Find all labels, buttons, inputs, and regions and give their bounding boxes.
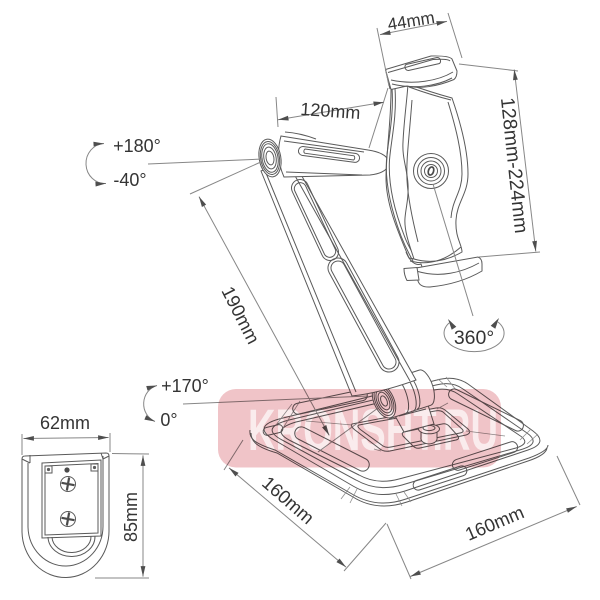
svg-text:160mm: 160mm	[462, 501, 527, 544]
svg-text:360°: 360°	[454, 327, 494, 349]
svg-text:62mm: 62mm	[40, 413, 90, 433]
svg-text:0°: 0°	[160, 410, 177, 430]
svg-text:+170°: +170°	[161, 376, 209, 396]
svg-text:190mm: 190mm	[217, 283, 264, 348]
svg-text:128mm-224mm: 128mm-224mm	[496, 96, 532, 234]
svg-text:44mm: 44mm	[386, 8, 436, 34]
svg-text:120mm: 120mm	[300, 99, 361, 123]
svg-text:85mm: 85mm	[121, 492, 141, 542]
svg-text:-40°: -40°	[113, 170, 146, 190]
svg-text:+180°: +180°	[113, 136, 161, 156]
